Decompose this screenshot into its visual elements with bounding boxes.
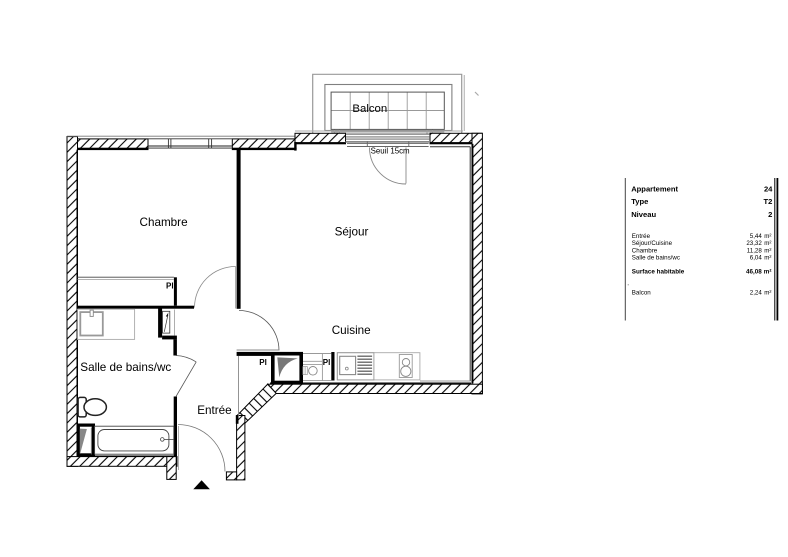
svg-text:m²: m²	[764, 269, 772, 276]
svg-text:Salle de bains/wc: Salle de bains/wc	[632, 255, 680, 262]
svg-text:Balcon: Balcon	[352, 103, 387, 115]
svg-text:m²: m²	[764, 240, 771, 247]
svg-text:m²: m²	[764, 233, 771, 240]
svg-text:23,32: 23,32	[746, 240, 762, 247]
svg-text:Chambre: Chambre	[632, 247, 658, 254]
svg-text:Type: Type	[631, 197, 648, 206]
svg-text:Surface habitable: Surface habitable	[632, 269, 685, 276]
svg-text:Entrée: Entrée	[632, 233, 651, 240]
svg-text:Cuisine: Cuisine	[332, 324, 371, 337]
svg-text:m²: m²	[764, 247, 771, 254]
svg-text:Balcon: Balcon	[632, 289, 651, 296]
svg-text:24: 24	[764, 185, 773, 194]
svg-text:Pl: Pl	[259, 358, 267, 367]
svg-text:Appartement: Appartement	[631, 185, 678, 194]
svg-text:Salle de bains/wc: Salle de bains/wc	[80, 361, 171, 374]
svg-text:m²: m²	[764, 255, 771, 262]
svg-text:Seuil 15cm: Seuil 15cm	[371, 146, 410, 155]
svg-text:m²: m²	[764, 289, 771, 296]
svg-text:6,04: 6,04	[750, 255, 763, 262]
svg-text:Pl: Pl	[323, 358, 331, 367]
svg-text:Séjour/Cuisine: Séjour/Cuisine	[632, 240, 673, 247]
svg-text:Pl: Pl	[166, 282, 174, 291]
svg-text:5,44: 5,44	[750, 233, 763, 240]
svg-text:11,28: 11,28	[747, 247, 763, 254]
svg-text:Entrée: Entrée	[197, 404, 231, 417]
svg-text:2,24: 2,24	[750, 289, 763, 296]
svg-text:Séjour: Séjour	[335, 226, 369, 239]
svg-text:46,08: 46,08	[746, 269, 762, 276]
svg-text:Chambre: Chambre	[140, 216, 188, 229]
svg-text:2: 2	[768, 210, 772, 219]
svg-text:Niveau: Niveau	[631, 210, 656, 219]
svg-text:T2: T2	[764, 197, 773, 206]
